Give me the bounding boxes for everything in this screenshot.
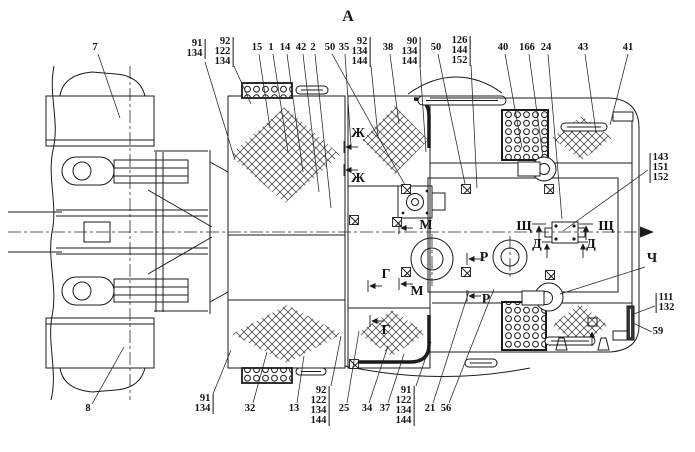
leader-line [633,323,652,332]
shchi-component [545,222,585,243]
bottom-mid-hatch-panel [348,308,430,368]
leader-line [315,54,331,208]
roof-slot-handle [418,96,506,105]
drawing-canvas: 7911349212213415114422503592134144389013… [0,0,695,452]
top-perforated-strip [242,83,292,98]
leader-line [369,346,388,403]
bottom-perforated-strip [242,368,292,383]
leader-line [213,350,231,394]
leader-line [331,336,341,386]
leader-line [433,291,469,403]
top-right-perforated-plate [502,110,548,160]
top-slot-handle [296,86,328,94]
centerline-arrow [640,227,654,238]
top-left-fender [46,72,154,146]
leader-line [92,347,124,404]
leader-line [205,62,235,160]
top-mid-hatch-panel [348,96,430,186]
leader-line [631,306,655,315]
leader-line [471,65,477,188]
technical-drawing [0,0,695,452]
front-section [8,66,228,400]
bottom-slot-handle [296,368,326,375]
leader-line [563,170,648,231]
break-line [51,66,56,400]
leader-line [98,54,120,118]
bottom-right-perforated-plate [502,302,546,350]
leader-line [297,356,304,403]
bottom-left-fender [46,318,154,392]
leader-line [449,289,494,403]
top-right-hatch-panel [552,116,612,160]
main-frame [228,77,639,383]
arch-slot-handle [465,359,497,367]
leader-line [438,54,465,184]
bottom-left-hatch-panel [228,300,345,368]
rear-handle-top [613,112,633,121]
view-title: А [342,8,354,26]
leader-line [416,342,431,386]
top-left-hatch-panel [228,96,345,235]
